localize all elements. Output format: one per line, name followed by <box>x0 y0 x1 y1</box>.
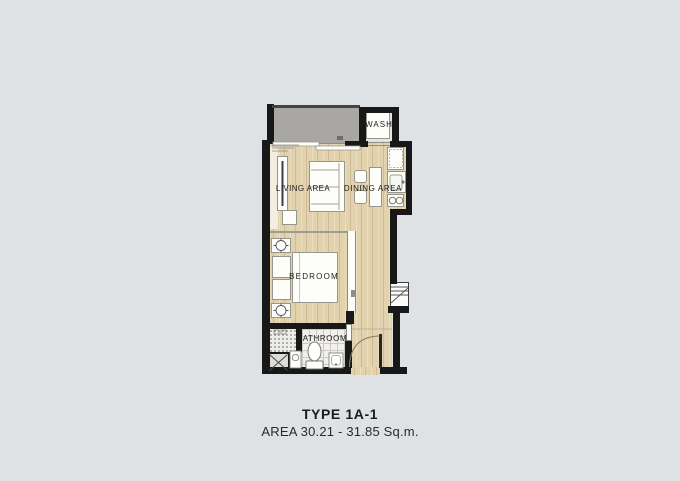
dining-area-label: DINING AREA <box>342 184 404 193</box>
wash-room-label: WASH <box>362 120 396 129</box>
wall-segment <box>267 104 274 144</box>
wall-segment <box>393 311 400 374</box>
wall-segment <box>345 141 368 147</box>
wall-segment <box>345 341 352 368</box>
bedroom-label: BEDROOM <box>287 272 341 281</box>
bathroom-label: BATHROOM <box>296 334 348 343</box>
wall-segment <box>406 141 412 215</box>
unit-area-text: AREA 30.21 - 31.85 Sq.m. <box>0 424 680 439</box>
bed-pillow <box>272 279 291 300</box>
shower-floor <box>269 329 296 352</box>
wall-segment <box>262 323 346 329</box>
wall-segment <box>346 311 354 324</box>
entry-threshold-floor <box>349 367 380 375</box>
wall-segment <box>262 367 351 374</box>
wall-segment <box>380 367 407 374</box>
unit-type-title: TYPE 1A-1 <box>0 406 680 422</box>
balcony-railing <box>272 105 360 108</box>
bedroom-partition-line <box>268 231 347 233</box>
balcony-floor <box>273 107 359 144</box>
fridge-counter <box>387 147 404 170</box>
sliding-door-handle <box>351 290 356 297</box>
wall-segment <box>390 209 397 284</box>
wall-segment <box>262 140 270 374</box>
side-table <box>282 210 297 225</box>
nightstand <box>271 238 291 253</box>
ac-ledge <box>390 282 409 307</box>
floor-plan-page: WASH LIVING AREA DINING AREA BEDROOM BAT… <box>0 0 680 481</box>
dining-chair <box>354 170 367 183</box>
bedroom-sliding-partition <box>347 231 356 313</box>
kitchen-hob <box>387 194 404 207</box>
nightstand <box>271 303 291 318</box>
living-area-label: LIVING AREA <box>271 184 335 193</box>
entrance-door-leaf <box>379 334 382 368</box>
